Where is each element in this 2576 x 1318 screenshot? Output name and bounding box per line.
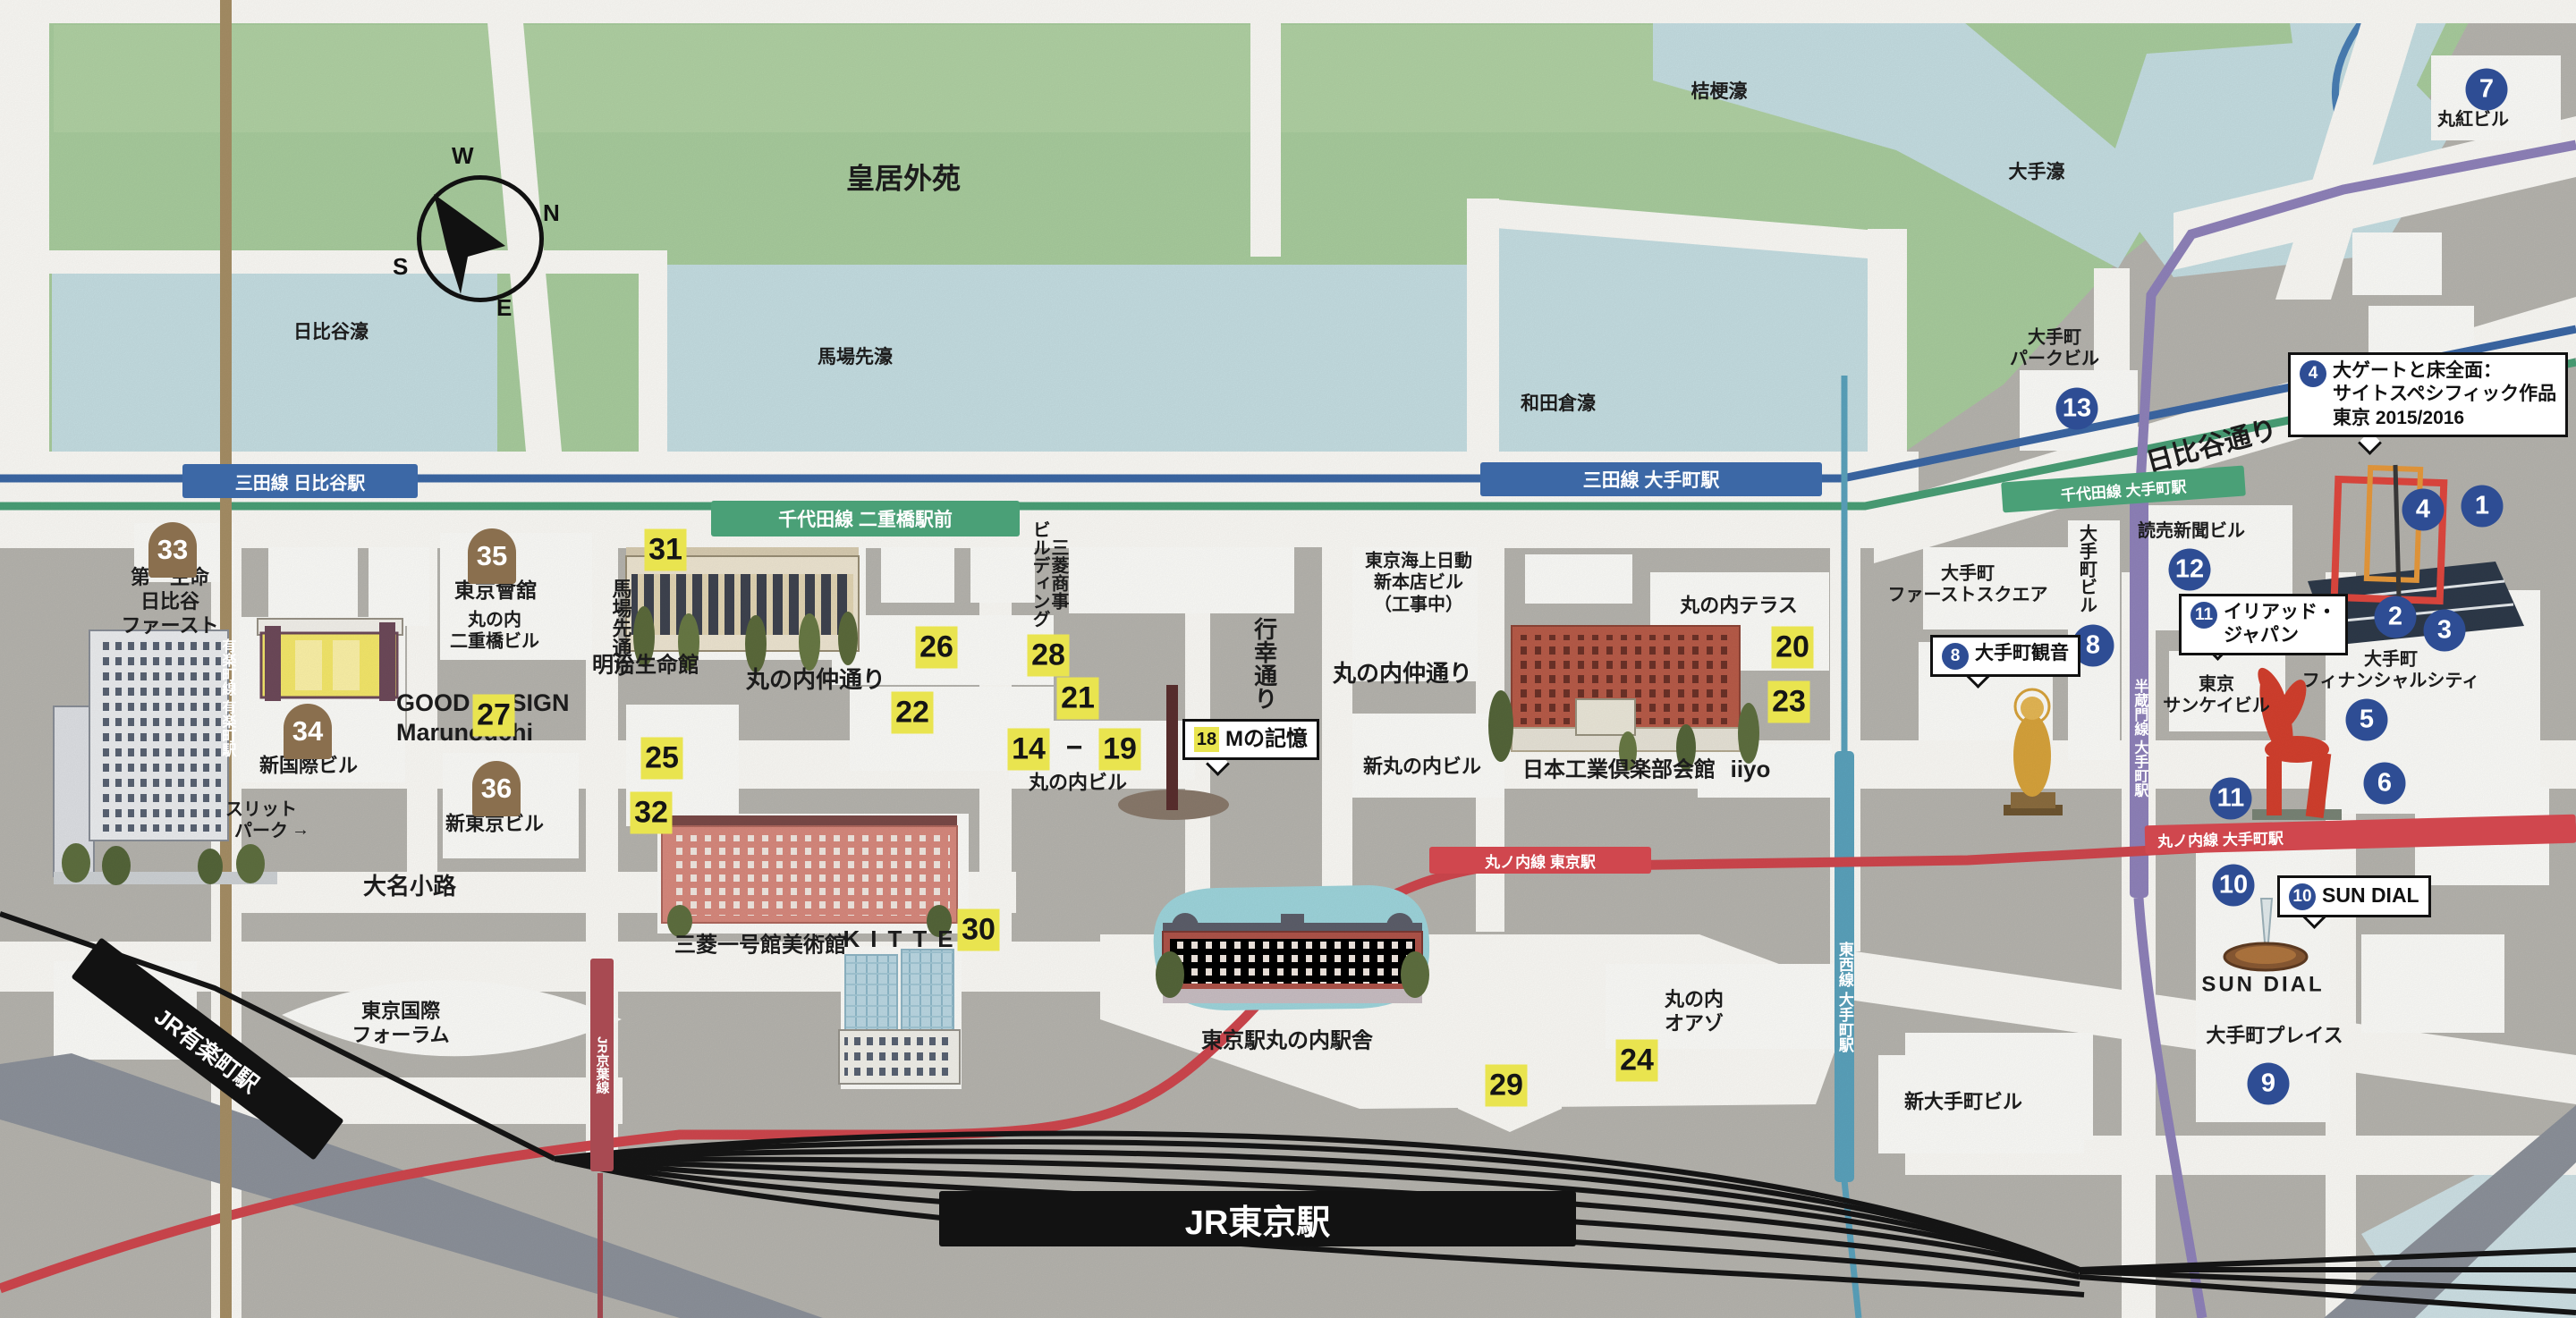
marunouchi-line-tokyo-station[interactable]: 丸ノ内線 東京駅 [1429, 847, 1651, 874]
marker-12[interactable]: 12 [2169, 549, 2211, 591]
tokyo-station-marunouchi-bldg: 東京駅丸の内駅舎 [1201, 1027, 1373, 1053]
imperial-palace-outer-garden: 皇居外苑 [846, 161, 961, 196]
illustrated-map-marunouchi-otemachi: W N S E 皇居外苑日比谷濠馬場先濠和田倉濠桔梗濠大手濠日比谷通り馬場先通り… [0, 0, 2576, 1318]
sun-dial-ground-label: SUN DIAL [2201, 971, 2324, 997]
callout-big-gate[interactable]: 4大ゲートと床全面： サイトスペシフィック作品 東京 2015/2016 [2288, 352, 2568, 437]
marker-34[interactable]: 34 [284, 704, 332, 759]
callout-otemachi-kannon-number: 8 [1942, 643, 1969, 670]
daimyo-koji: 大名小路 [363, 873, 456, 901]
marker-3[interactable]: 3 [2424, 610, 2466, 652]
marker-36[interactable]: 36 [472, 761, 521, 816]
marunouchi-oazo: 丸の内 オアゾ [1665, 988, 1724, 1036]
jr-keiyo-line[interactable]: JR京葉線 [590, 959, 614, 1171]
marker-10[interactable]: 10 [2213, 865, 2255, 907]
marker-35[interactable]: 35 [468, 528, 516, 584]
meiji-seimeikan: 明治生命館 [592, 652, 699, 678]
marker-23[interactable]: 23 [1768, 681, 1810, 723]
jr-tokyo-station[interactable]: JR東京駅 [939, 1191, 1576, 1246]
compass-e: E [496, 294, 512, 322]
callout-iliad-japan[interactable]: 11イリアッド・ ジャパン [2179, 594, 2348, 655]
marker-28[interactable]: 28 [1028, 635, 1070, 677]
mitsubishi-shoji-bldg: 三菱商事 ビルディング [1030, 520, 1067, 628]
tozai-line-otemachi-station: 東西線 大手町駅 [1836, 942, 1852, 1052]
marker-20[interactable]: 20 [1772, 627, 1814, 669]
mita-line-hibiya-station[interactable]: 三田線 日比谷駅 [182, 464, 418, 498]
callout-sun-dial[interactable]: 10SUN DIAL [2277, 875, 2431, 917]
shin-otemachi-bldg: 新大手町ビル [1904, 1091, 2022, 1115]
marunouchi-terrace: 丸の内テラス [1680, 595, 1798, 619]
marker-2[interactable]: 2 [2375, 596, 2417, 638]
marker-6[interactable]: 6 [2364, 763, 2406, 805]
kikyo-moat: 桔梗濠 [1691, 80, 1748, 104]
compass-needle [421, 180, 539, 298]
marubeni-bldg: 丸紅ビル [2437, 109, 2509, 131]
marker-24[interactable]: 24 [1616, 1040, 1658, 1082]
tokio-marine-new-head-office: 東京海上日動 新本店ビル （工事中） [1365, 550, 1472, 615]
iiyo: iiyo [1731, 756, 1771, 784]
marker-29[interactable]: 29 [1486, 1065, 1528, 1107]
mitsubishi-ichigokan-museum: 三菱一号館美術館 [674, 932, 846, 958]
callout-otemachi-kannon[interactable]: 8大手町観音 [1930, 635, 2080, 677]
compass-s: S [393, 253, 408, 281]
marunouchi-naka-dori-west: 丸の内仲通り [746, 666, 885, 695]
otemachi-bldg: 大手町ビル [2077, 524, 2096, 613]
wadakura-moat: 和田倉濠 [1521, 393, 1596, 416]
hibiya-moat: 日比谷濠 [293, 321, 369, 344]
compass-w: W [452, 142, 474, 170]
tokyo-sankei-bldg: 東京 サンケイビル [2163, 674, 2270, 718]
marker-14[interactable]: 14 [1008, 729, 1050, 771]
yurakucho-line-yurakucho-station: 有楽町線 有楽町駅 [219, 638, 234, 756]
marker-5[interactable]: 5 [2346, 699, 2388, 741]
marunouchi-nijubashi-bldg: 丸の内 二重橋ビル [450, 610, 539, 654]
paper-grain [0, 0, 2576, 1318]
marker-21[interactable]: 21 [1057, 678, 1099, 720]
marker-13[interactable]: 13 [2056, 388, 2098, 430]
marker-1[interactable]: 1 [2462, 486, 2504, 528]
slit-park: スリット パーク [225, 799, 297, 843]
otemachi-financial-city: 大手町 フィナンシャルシティ [2302, 649, 2479, 693]
marunouchi-bldg: 丸の内ビル [1029, 772, 1127, 796]
callout-otemachi-kannon-text: 大手町観音 [1975, 642, 2069, 665]
callout-sun-dial-text: SUN DIAL [2322, 883, 2419, 908]
mita-line-otemachi-station[interactable]: 三田線 大手町駅 [1480, 462, 1822, 496]
callout-big-gate-number: 4 [2300, 360, 2326, 387]
marker-9[interactable]: 9 [2248, 1063, 2290, 1105]
marker-32[interactable]: 32 [631, 792, 673, 834]
yomiuri-shimbun-bldg: 読売新聞ビル [2138, 520, 2245, 542]
callout-big-gate-text: 大ゲートと床全面： サイトスペシフィック作品 東京 2015/2016 [2333, 359, 2556, 430]
marker-4[interactable]: 4 [2402, 489, 2445, 531]
marker-11[interactable]: 11 [2210, 778, 2252, 820]
kogyo-club-kaikan: 日本工業倶楽部会館 [1522, 756, 1716, 782]
otemachi-first-square: 大手町 ファーストスクエア [1888, 563, 2048, 607]
callout-m-memory[interactable]: 18Mの記憶 [1182, 719, 1319, 760]
callout-iliad-japan-number: 11 [2190, 602, 2217, 629]
marker-27[interactable]: 27 [473, 695, 515, 737]
callout-sun-dial-number: 10 [2289, 883, 2316, 910]
marker-7[interactable]: 7 [2466, 69, 2508, 111]
callout-m-memory-number: 18 [1194, 727, 1219, 752]
marker-26[interactable]: 26 [916, 627, 958, 669]
range-dash: − [1066, 730, 1083, 765]
compass-rose: W N S E [417, 175, 544, 302]
map-base-artwork [0, 0, 2576, 1318]
chiyoda-line-nijubashimae-station[interactable]: 千代田線 二重橋駅前 [711, 501, 1020, 536]
compass-n: N [543, 199, 560, 227]
tokyo-international-forum: 東京国際 フォーラム [352, 1000, 449, 1048]
marker-19[interactable]: 19 [1099, 729, 1141, 771]
gyoko-dori: 行幸通り [1251, 617, 1275, 710]
marker-33[interactable]: 33 [148, 522, 197, 578]
otemachi-place: 大手町プレイス [2206, 1025, 2343, 1049]
kitte: KITTE [843, 925, 963, 954]
marker-30[interactable]: 30 [958, 909, 1000, 951]
slit-park-arrow: → [292, 819, 309, 841]
marunouchi-naka-dori-east: 丸の内仲通り [1333, 660, 1472, 689]
marker-22[interactable]: 22 [892, 692, 934, 734]
callout-m-memory-text: Mの記憶 [1225, 726, 1308, 753]
babasaki-moat: 馬場先濠 [818, 346, 893, 369]
marker-31[interactable]: 31 [645, 529, 687, 571]
ote-moat: 大手濠 [2009, 161, 2065, 184]
callout-iliad-japan-text: イリアッド・ ジャパン [2224, 601, 2336, 648]
shin-marunouchi-bldg: 新丸の内ビル [1363, 756, 1481, 780]
hanzomon-line-otemachi-station: 半蔵門線 大手町駅 [2131, 679, 2147, 797]
otemachi-park-bldg: 大手町 パークビル [2010, 327, 2099, 371]
marker-25[interactable]: 25 [641, 738, 683, 780]
